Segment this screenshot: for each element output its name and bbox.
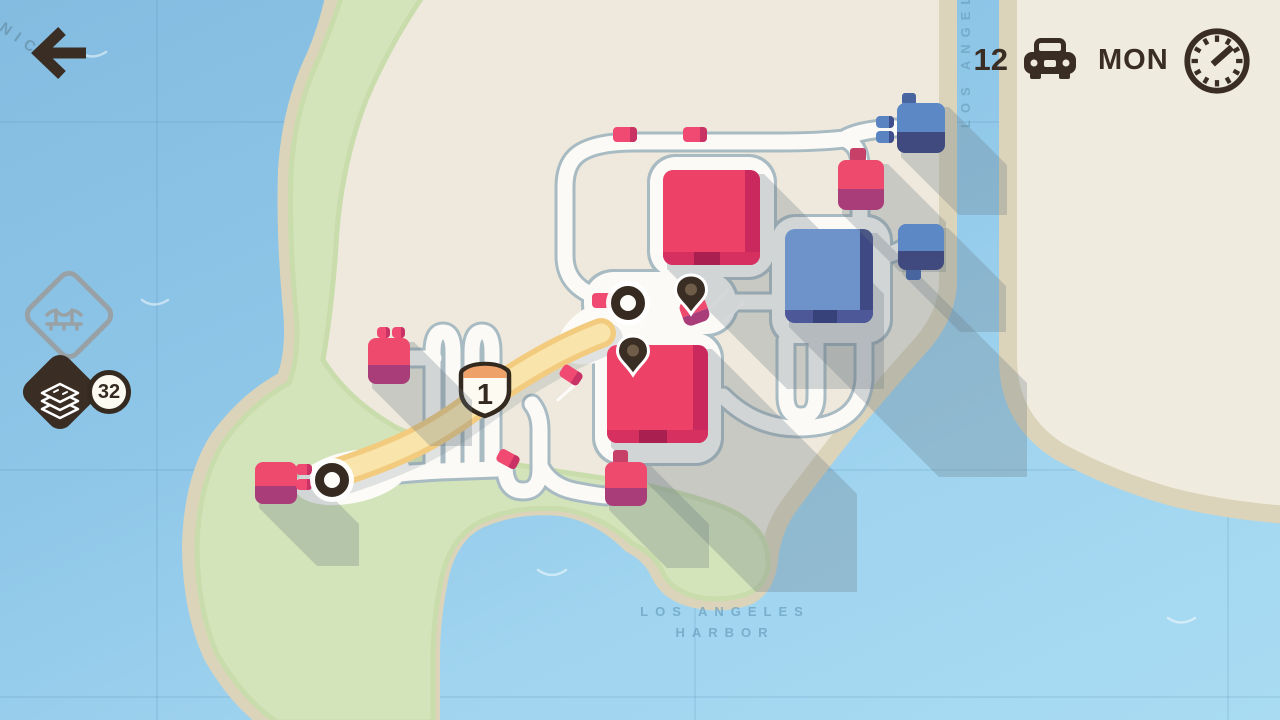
big-building-red-1-fold [745,170,760,265]
house-red-northeast-roof [838,160,884,189]
landmass-east [1008,0,1280,515]
house-blue-north-roof [897,103,945,132]
building-big-building-blue-1[interactable] [785,229,873,323]
motorway-node[interactable] [315,463,349,497]
house-red-south[interactable] [605,462,647,506]
vehicle-count: 12 [948,42,1008,78]
destination-pin-icon [615,333,651,379]
house-blue-north-base [897,132,945,153]
house-red-south-base [605,488,647,506]
house-blue-north[interactable] [897,103,945,153]
house-blue-east-base [898,251,944,270]
house-red-south-roof [605,462,647,488]
shield-number: 1 [477,379,493,411]
car [683,127,707,142]
house-red-northeast[interactable] [838,160,884,210]
motorway-node[interactable] [611,286,645,320]
big-building-blue-1-door-notch [813,310,837,323]
car [377,327,390,338]
house-blue-east-roof [898,224,944,251]
house-red-southwest-base [255,486,297,504]
car-windshield [889,131,894,143]
game-map[interactable]: 1 SANTA MONICA LOS ANGELES LOS ANGELES H… [0,0,1280,720]
big-building-red-2-fold [693,345,708,443]
road-tiles-count-badge: 32 [87,370,131,414]
destination-pin-icon [673,272,709,318]
big-building-red-1-door-notch [694,252,720,265]
day-indicator: MON [1098,44,1169,77]
building-big-building-red-1[interactable] [663,170,760,265]
car [876,131,894,143]
house-red-west-roof [368,338,410,365]
car [296,464,312,475]
house-red-southwest[interactable] [255,462,297,504]
house-blue-east[interactable] [898,224,944,270]
house-red-southwest-roof [255,462,297,486]
car [613,127,637,142]
big-building-red-2-door-notch [639,430,666,443]
car [296,479,312,490]
car [876,116,894,128]
car-windshield [700,127,707,142]
car-windshield [630,127,637,142]
house-red-west-base [368,365,410,384]
house-red-west[interactable] [368,338,410,384]
car-windshield [889,116,894,128]
car [392,327,405,338]
house-red-northeast-base [838,189,884,210]
big-building-blue-1-fold [860,229,873,323]
